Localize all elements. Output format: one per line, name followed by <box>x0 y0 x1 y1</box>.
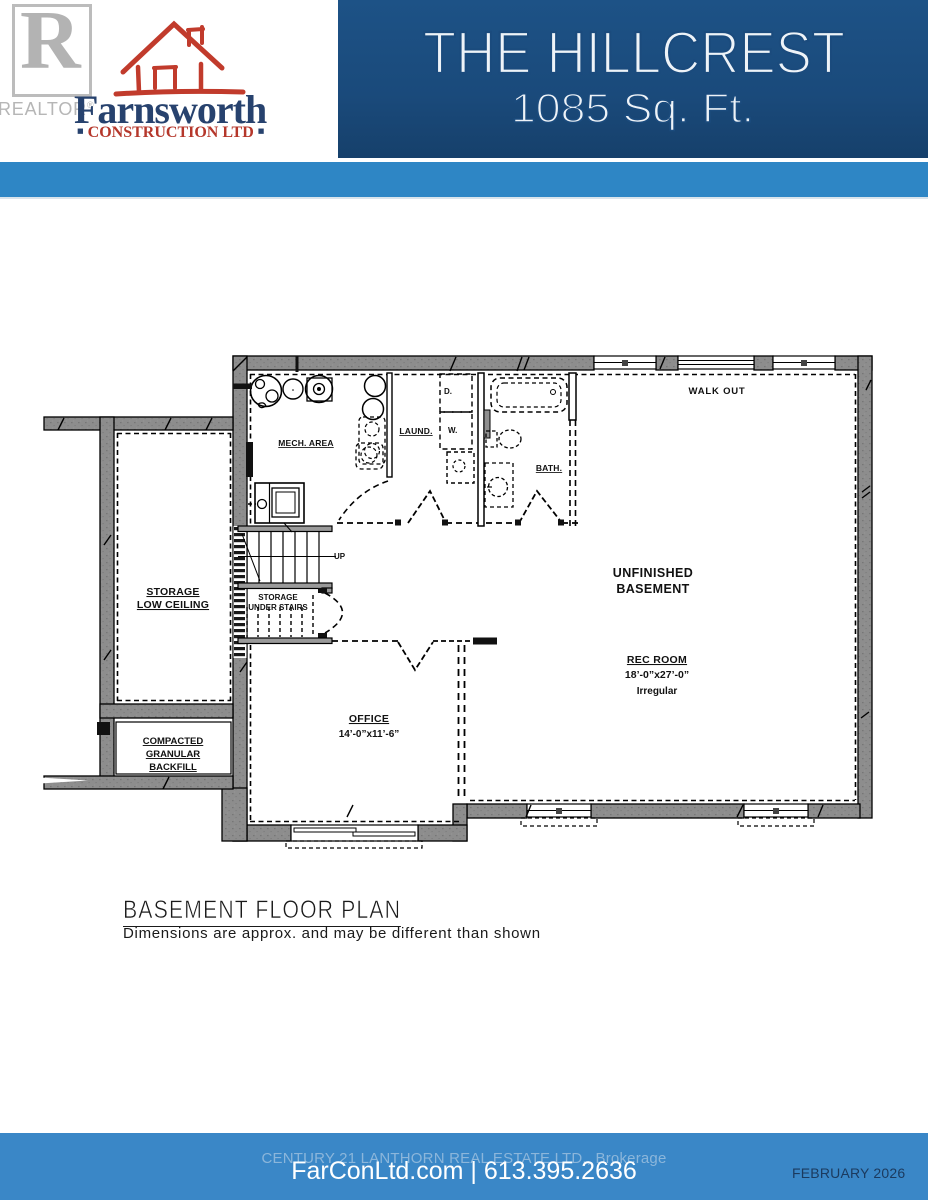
svg-text:14’-0”x11’-6”: 14’-0”x11’-6” <box>339 729 400 740</box>
svg-text:UP: UP <box>334 552 346 561</box>
svg-text:LAUND.: LAUND. <box>399 426 432 436</box>
svg-text:LOW CEILING: LOW CEILING <box>137 599 209 611</box>
svg-text:COMPACTED: COMPACTED <box>143 736 204 747</box>
svg-text:W.: W. <box>448 426 457 435</box>
svg-text:STORAGE: STORAGE <box>258 593 298 602</box>
svg-text:MECH. AREA: MECH. AREA <box>278 438 334 448</box>
svg-text:18’-0”x27’-0”: 18’-0”x27’-0” <box>625 669 689 681</box>
svg-text:UNDER STAIRS: UNDER STAIRS <box>248 603 308 612</box>
svg-text:D.: D. <box>444 387 452 396</box>
svg-text:UNFINISHED: UNFINISHED <box>613 566 693 580</box>
svg-text:BASEMENT: BASEMENT <box>616 582 689 596</box>
svg-text:REC ROOM: REC ROOM <box>627 654 687 666</box>
svg-text:STORAGE: STORAGE <box>146 586 199 598</box>
svg-text:WALK OUT: WALK OUT <box>688 386 745 397</box>
svg-text:BACKFILL: BACKFILL <box>149 762 197 773</box>
svg-text:BATH.: BATH. <box>536 463 562 473</box>
svg-text:GRANULAR: GRANULAR <box>146 749 200 760</box>
svg-text:Irregular: Irregular <box>637 686 678 697</box>
svg-text:OFFICE: OFFICE <box>349 713 389 725</box>
